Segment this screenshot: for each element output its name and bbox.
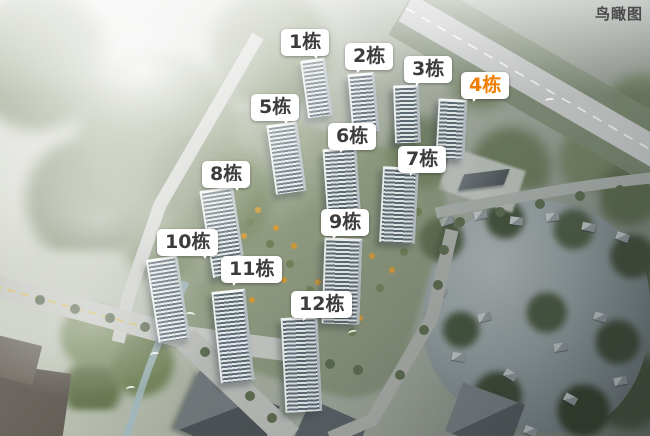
building-label-10: 10栋 [157,229,218,256]
building-label-7: 7栋 [398,146,446,173]
building-label-3: 3栋 [404,56,452,83]
building-label-8: 8栋 [202,161,250,188]
building-label-5: 5栋 [251,94,299,121]
building-label-12: 12栋 [291,291,352,318]
building-label-4: 4栋 [461,72,509,99]
building-label-11: 11栋 [221,256,282,283]
view-title: 鸟瞰图 [595,3,643,24]
building-label-1: 1栋 [281,29,329,56]
building-label-2: 2栋 [345,43,393,70]
building-label-6: 6栋 [328,123,376,150]
building-label-9: 9栋 [321,209,369,236]
bird-icon [186,312,195,318]
aerial-view-image: 鸟瞰图 1栋 2栋 3栋 4栋 5栋 6栋 7栋 8栋 9栋 10栋 11栋 1… [0,0,650,436]
